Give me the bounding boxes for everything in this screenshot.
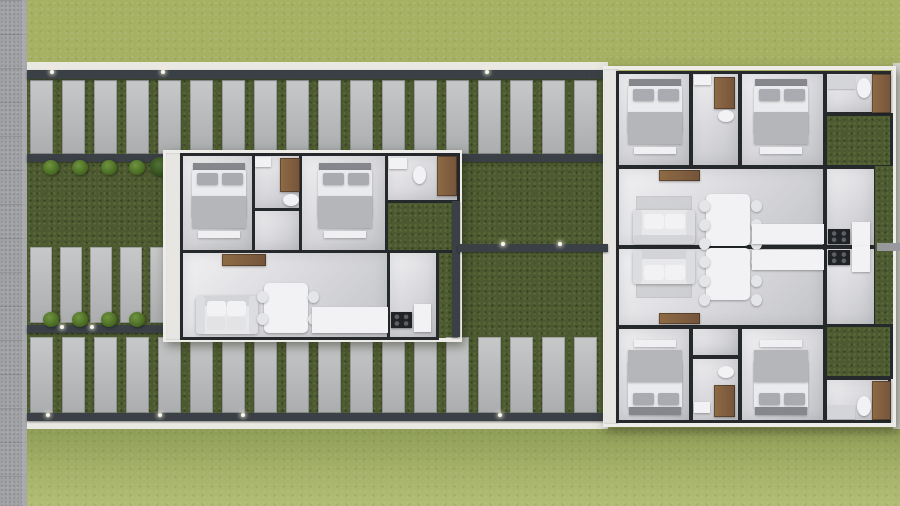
bath-sink <box>694 75 711 85</box>
bath-sink <box>255 157 271 167</box>
bed-headboard <box>629 407 681 415</box>
paver-slab <box>510 337 533 413</box>
dining-chair <box>751 275 762 287</box>
sofa-arm <box>686 250 695 284</box>
bed-bench <box>760 340 802 347</box>
fence-lamp <box>90 325 94 329</box>
paver-slab <box>318 80 341 154</box>
paver-slab <box>574 80 597 154</box>
paver-slab <box>222 337 245 413</box>
sofa-cushion <box>644 265 664 280</box>
paver-slab <box>350 80 373 154</box>
toilet <box>283 194 299 206</box>
paver-slab <box>94 337 117 413</box>
paver-slab <box>62 337 85 413</box>
paver-slab <box>446 80 469 154</box>
sideboard <box>222 254 266 266</box>
dining-chair <box>257 313 268 325</box>
trim-bottom <box>27 420 608 429</box>
bath-shelf <box>694 402 710 413</box>
bed-bench <box>634 340 676 347</box>
bed-pillow <box>658 393 679 405</box>
site-plan-top-view-render <box>0 0 900 506</box>
paver-slab <box>254 80 277 154</box>
dining-chair <box>699 294 710 306</box>
paver-slab <box>286 80 309 154</box>
dining-chair <box>308 291 319 303</box>
courtyard-fence-vert <box>452 201 460 337</box>
bush <box>43 312 59 327</box>
bush <box>129 312 145 327</box>
paver-slab <box>382 337 405 413</box>
sofa-arm <box>633 250 642 284</box>
bed-pillow <box>658 89 679 101</box>
bush <box>72 312 88 327</box>
bed-pillow <box>197 173 218 185</box>
bed-headboard <box>755 407 807 415</box>
fridge <box>852 246 870 272</box>
kitchen-counter <box>752 250 824 270</box>
right-sidegrass-b <box>875 246 893 326</box>
fence-lamp <box>60 325 64 329</box>
toilet <box>857 396 871 416</box>
kitchen-counter <box>752 224 824 244</box>
fridge <box>852 222 870 248</box>
right-sidegrass-a <box>875 166 893 248</box>
fence-connector-right <box>877 243 900 251</box>
sofa-cushion <box>227 301 246 316</box>
toilet <box>857 78 871 98</box>
paver-slab <box>30 80 53 154</box>
paver-slab <box>190 337 213 413</box>
bed-pillow <box>759 89 780 101</box>
fence-top <box>27 70 608 79</box>
cooktop <box>828 250 850 265</box>
paver-slab <box>222 80 245 154</box>
paver-slab <box>126 337 149 413</box>
cooktop <box>391 312 412 328</box>
dining-table <box>706 248 750 300</box>
dining-chair <box>699 219 710 231</box>
dining-chair <box>751 294 762 306</box>
bed-pillow <box>633 393 654 405</box>
fence-lamp <box>498 413 502 417</box>
left-hallway <box>252 208 302 253</box>
bed-duvet <box>192 196 246 228</box>
fence-lamp <box>241 413 245 417</box>
toilet <box>413 166 426 184</box>
bath-door-wood <box>872 381 891 420</box>
dining-chair <box>699 256 710 268</box>
paver-slab <box>542 337 565 413</box>
right-hall-b <box>690 326 741 358</box>
paver-slab <box>158 80 181 154</box>
paver-slab <box>382 80 405 154</box>
fence-lamp <box>50 70 54 74</box>
dining-chair <box>699 200 710 212</box>
toilet <box>718 110 734 122</box>
left-patio <box>385 200 460 253</box>
sofa-arm <box>249 296 258 334</box>
left-patio-side <box>439 253 452 337</box>
bush <box>101 312 117 327</box>
bed-duvet <box>318 196 372 228</box>
fence-lamp <box>558 242 562 246</box>
sofa-seat <box>227 317 246 330</box>
dining-chair <box>257 291 268 303</box>
sideboard <box>659 170 700 181</box>
bed-pillow <box>222 173 243 185</box>
bath-vanity <box>280 158 300 192</box>
bath-vanity <box>714 77 735 109</box>
bed-bench <box>324 231 366 238</box>
kitchen-counter <box>312 307 388 333</box>
sideboard <box>659 313 700 324</box>
bed-bench <box>634 147 676 154</box>
bath-door-wood <box>437 156 457 196</box>
paver-slab <box>414 337 437 413</box>
bath-counter <box>828 75 855 89</box>
bed-pillow <box>323 173 344 185</box>
bed-pillow <box>759 393 780 405</box>
dining-chair <box>699 275 710 287</box>
paver-slab <box>94 80 117 154</box>
bed-bench <box>760 147 802 154</box>
right-patio-b <box>824 324 893 379</box>
bed-pillow <box>633 89 654 101</box>
toilet <box>718 366 734 378</box>
fence-lamp <box>158 413 162 417</box>
cooktop <box>828 229 850 244</box>
bath-sink <box>389 158 407 169</box>
paver-slab <box>446 337 469 413</box>
bath-sink <box>828 405 855 419</box>
bed-pillow <box>348 173 369 185</box>
sofa-cushion <box>207 301 226 316</box>
paver-slab <box>350 337 373 413</box>
paver-slab <box>286 337 309 413</box>
bath-door-wood <box>872 74 891 113</box>
paver-slab <box>414 80 437 154</box>
bush <box>72 160 88 175</box>
fridge <box>414 304 431 332</box>
sofa-arm <box>196 296 205 334</box>
dining-chair <box>751 200 762 212</box>
bed-pillow <box>784 393 805 405</box>
paver-slab <box>30 337 53 413</box>
fence-lamp <box>501 242 505 246</box>
dining-table <box>706 194 750 246</box>
fence-mid-2 <box>27 413 608 421</box>
bed-duvet <box>754 112 808 144</box>
paver-slab <box>126 80 149 154</box>
paver-slab <box>254 337 277 413</box>
courtyard-fence-cross <box>458 244 608 252</box>
paver-slab <box>542 80 565 154</box>
fence-lamp <box>46 413 50 417</box>
paver-slab <box>62 80 85 154</box>
paver-slab <box>510 80 533 154</box>
dining-table <box>264 283 308 333</box>
bath-vanity <box>714 385 735 417</box>
bed-bench <box>198 231 240 238</box>
fence-lamp <box>485 70 489 74</box>
paver-slab <box>574 337 597 413</box>
paver-slab <box>478 337 501 413</box>
fence-lamp <box>161 70 165 74</box>
sofa-cushion <box>665 214 685 229</box>
paver-slab <box>478 80 501 154</box>
bush <box>129 160 145 175</box>
lawn-top-right <box>608 0 900 70</box>
sofa-cushion <box>665 265 685 280</box>
paver-slab <box>318 337 341 413</box>
bed-duvet <box>628 112 682 144</box>
sofa-seat <box>207 317 226 330</box>
bush <box>101 160 117 175</box>
paver-slab <box>158 337 181 413</box>
bush <box>43 160 59 175</box>
bed-duvet <box>628 350 682 382</box>
sofa-back <box>633 235 695 244</box>
lawn-bottom <box>27 428 900 506</box>
bed-duvet <box>754 350 808 382</box>
bed-pillow <box>784 89 805 101</box>
paver-slab <box>190 80 213 154</box>
right-patio-t <box>824 113 893 168</box>
sofa-cushion <box>644 214 664 229</box>
